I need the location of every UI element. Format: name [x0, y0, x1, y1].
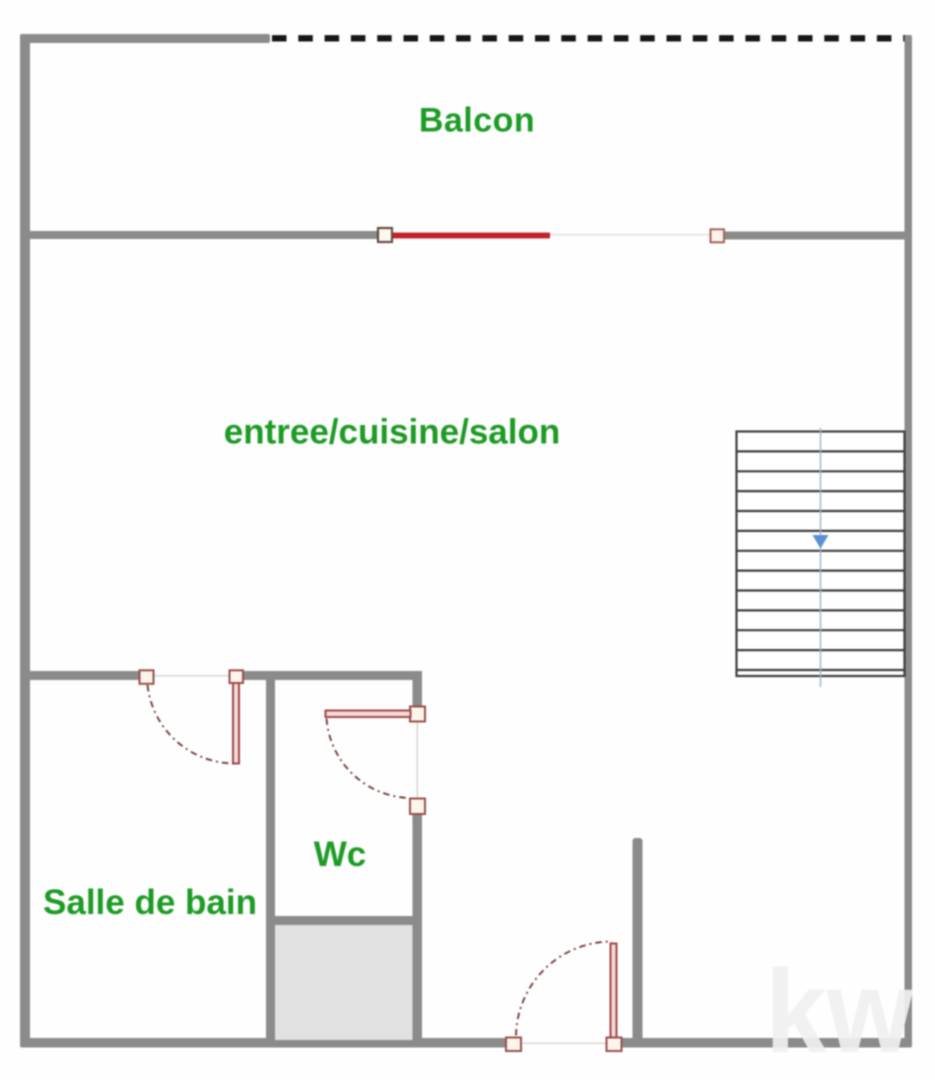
svg-text:Wc: Wc: [314, 835, 367, 874]
svg-text:Salle de bain: Salle de bain: [43, 883, 257, 922]
svg-text:Balcon: Balcon: [419, 102, 535, 140]
svg-text:entree/cuisine/salon: entree/cuisine/salon: [224, 413, 561, 452]
svg-text:kw: kw: [765, 946, 914, 1078]
